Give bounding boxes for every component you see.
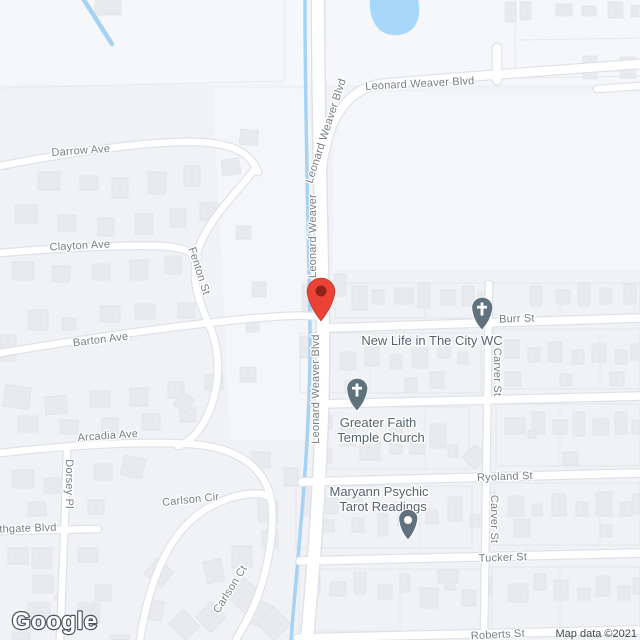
building bbox=[572, 350, 584, 364]
street-label-tucker-st: Tucker St bbox=[478, 551, 527, 565]
building bbox=[330, 582, 346, 596]
street-label-roberts-st: Roberts St bbox=[471, 628, 526, 640]
poi-label-greater-faith-line1[interactable]: Greater Faith bbox=[340, 415, 417, 430]
building bbox=[326, 498, 338, 514]
building bbox=[420, 588, 438, 608]
building bbox=[135, 214, 153, 234]
building bbox=[372, 290, 384, 304]
building bbox=[528, 348, 540, 362]
building bbox=[576, 502, 588, 516]
street-label-burr-st: Burr St bbox=[499, 312, 535, 325]
building bbox=[378, 514, 388, 536]
building bbox=[620, 502, 632, 516]
street-label-carver-st-south: Carver St bbox=[488, 495, 500, 543]
building bbox=[458, 352, 468, 364]
building bbox=[15, 205, 37, 223]
building bbox=[582, 6, 596, 16]
building bbox=[554, 580, 568, 600]
building bbox=[78, 548, 98, 562]
building bbox=[142, 414, 160, 430]
building bbox=[236, 226, 251, 239]
building bbox=[631, 5, 639, 17]
building bbox=[632, 420, 640, 434]
building bbox=[578, 588, 590, 600]
building bbox=[400, 574, 410, 592]
building bbox=[578, 284, 590, 306]
building bbox=[33, 575, 53, 593]
building bbox=[352, 518, 364, 532]
building bbox=[80, 176, 98, 190]
building bbox=[58, 215, 76, 231]
building bbox=[95, 0, 121, 15]
building bbox=[633, 494, 640, 514]
poi-label-new-life[interactable]: New Life in The City WC bbox=[361, 333, 502, 348]
building bbox=[592, 344, 606, 362]
building bbox=[593, 419, 609, 435]
building bbox=[505, 418, 525, 434]
building bbox=[12, 262, 34, 280]
building bbox=[430, 424, 446, 448]
building bbox=[610, 372, 624, 386]
building bbox=[240, 367, 256, 382]
map-land-field-right bbox=[333, 92, 640, 270]
building bbox=[95, 585, 111, 601]
building bbox=[340, 352, 356, 370]
building bbox=[110, 635, 130, 640]
building bbox=[178, 303, 195, 318]
building bbox=[62, 318, 76, 330]
building bbox=[88, 500, 104, 514]
building bbox=[405, 378, 417, 392]
building bbox=[135, 304, 155, 319]
building bbox=[148, 172, 166, 194]
building bbox=[44, 478, 62, 493]
poi-label-maryann-line1[interactable]: Maryann Psychic bbox=[330, 484, 429, 499]
building bbox=[441, 290, 455, 305]
building bbox=[556, 4, 572, 16]
building bbox=[563, 452, 578, 465]
street-label-carver-st-north: Carver St bbox=[491, 348, 503, 396]
building bbox=[514, 519, 530, 537]
building bbox=[378, 585, 392, 599]
building bbox=[390, 355, 402, 369]
building bbox=[239, 129, 258, 146]
building bbox=[532, 504, 542, 516]
building bbox=[412, 348, 428, 368]
poi-label-greater-faith-line2[interactable]: Temple Church bbox=[337, 430, 424, 445]
building bbox=[508, 584, 528, 602]
building bbox=[120, 455, 146, 479]
street-label-leonard-weaver-mid: Leonard Weaver bbox=[307, 194, 319, 278]
building bbox=[426, 510, 438, 524]
building bbox=[505, 2, 516, 22]
building bbox=[52, 266, 70, 282]
building bbox=[3, 384, 32, 409]
church-cross-icon bbox=[477, 306, 487, 309]
building bbox=[12, 470, 34, 488]
building bbox=[232, 546, 252, 568]
street-label-dorsey-pl: Dorsey Pl bbox=[63, 459, 75, 508]
building bbox=[44, 395, 68, 415]
building bbox=[28, 310, 48, 330]
building bbox=[100, 306, 120, 322]
building bbox=[596, 492, 612, 516]
building bbox=[596, 576, 610, 596]
building bbox=[184, 166, 200, 186]
building bbox=[130, 260, 148, 280]
building bbox=[505, 340, 519, 358]
building bbox=[508, 496, 524, 516]
building bbox=[334, 274, 346, 296]
map-canvas[interactable]: Leonard Weaver Blvd Leonard Weaver Blvd … bbox=[0, 0, 640, 640]
building bbox=[528, 430, 536, 438]
building bbox=[90, 391, 110, 407]
church-cross-icon bbox=[356, 384, 359, 397]
building bbox=[32, 548, 52, 568]
building bbox=[573, 412, 585, 436]
map-marker-dot bbox=[316, 286, 327, 297]
building bbox=[505, 372, 521, 386]
building bbox=[462, 590, 476, 606]
building bbox=[354, 572, 366, 594]
church-cross-icon bbox=[352, 387, 362, 390]
map-viewport[interactable]: Leonard Weaver Blvd Leonard Weaver Blvd … bbox=[0, 0, 640, 640]
map-land-field-center bbox=[213, 88, 312, 440]
building bbox=[130, 388, 148, 406]
building bbox=[8, 548, 28, 564]
building bbox=[395, 288, 413, 304]
building bbox=[552, 494, 566, 516]
building bbox=[418, 284, 430, 308]
building bbox=[448, 445, 458, 457]
building bbox=[608, 2, 623, 18]
building bbox=[92, 264, 110, 280]
building bbox=[448, 497, 462, 521]
building bbox=[352, 286, 367, 310]
google-logo[interactable]: Google bbox=[12, 608, 98, 635]
building bbox=[284, 468, 298, 486]
building bbox=[112, 178, 128, 198]
building bbox=[470, 515, 480, 527]
building bbox=[430, 372, 444, 388]
building bbox=[98, 218, 114, 236]
building bbox=[618, 586, 630, 600]
building bbox=[530, 286, 542, 306]
building bbox=[600, 288, 612, 304]
building bbox=[438, 570, 458, 583]
building bbox=[615, 412, 627, 434]
building bbox=[18, 416, 38, 432]
building bbox=[170, 209, 186, 227]
street-label-ryoland-st: Ryoland St bbox=[477, 470, 533, 484]
building bbox=[520, 2, 531, 20]
building bbox=[548, 342, 562, 362]
building bbox=[553, 420, 567, 434]
map-attribution: Map data ©2021 bbox=[556, 628, 638, 640]
building bbox=[165, 256, 181, 274]
building bbox=[633, 578, 640, 594]
building bbox=[94, 464, 112, 480]
building bbox=[631, 344, 640, 360]
generic-poi-pin-hole bbox=[404, 516, 412, 524]
building bbox=[28, 502, 46, 516]
building bbox=[624, 284, 636, 304]
building bbox=[534, 574, 546, 590]
building bbox=[38, 172, 60, 190]
building bbox=[221, 158, 241, 176]
building bbox=[252, 282, 266, 297]
church-cross-icon bbox=[481, 303, 484, 316]
building bbox=[556, 290, 570, 304]
building bbox=[462, 286, 474, 306]
street-label-leonard-weaver-blvd-south: Leonard Weaver Blvd bbox=[310, 334, 322, 443]
building bbox=[615, 350, 627, 364]
building bbox=[600, 525, 612, 537]
building bbox=[60, 420, 78, 434]
building bbox=[560, 374, 572, 386]
